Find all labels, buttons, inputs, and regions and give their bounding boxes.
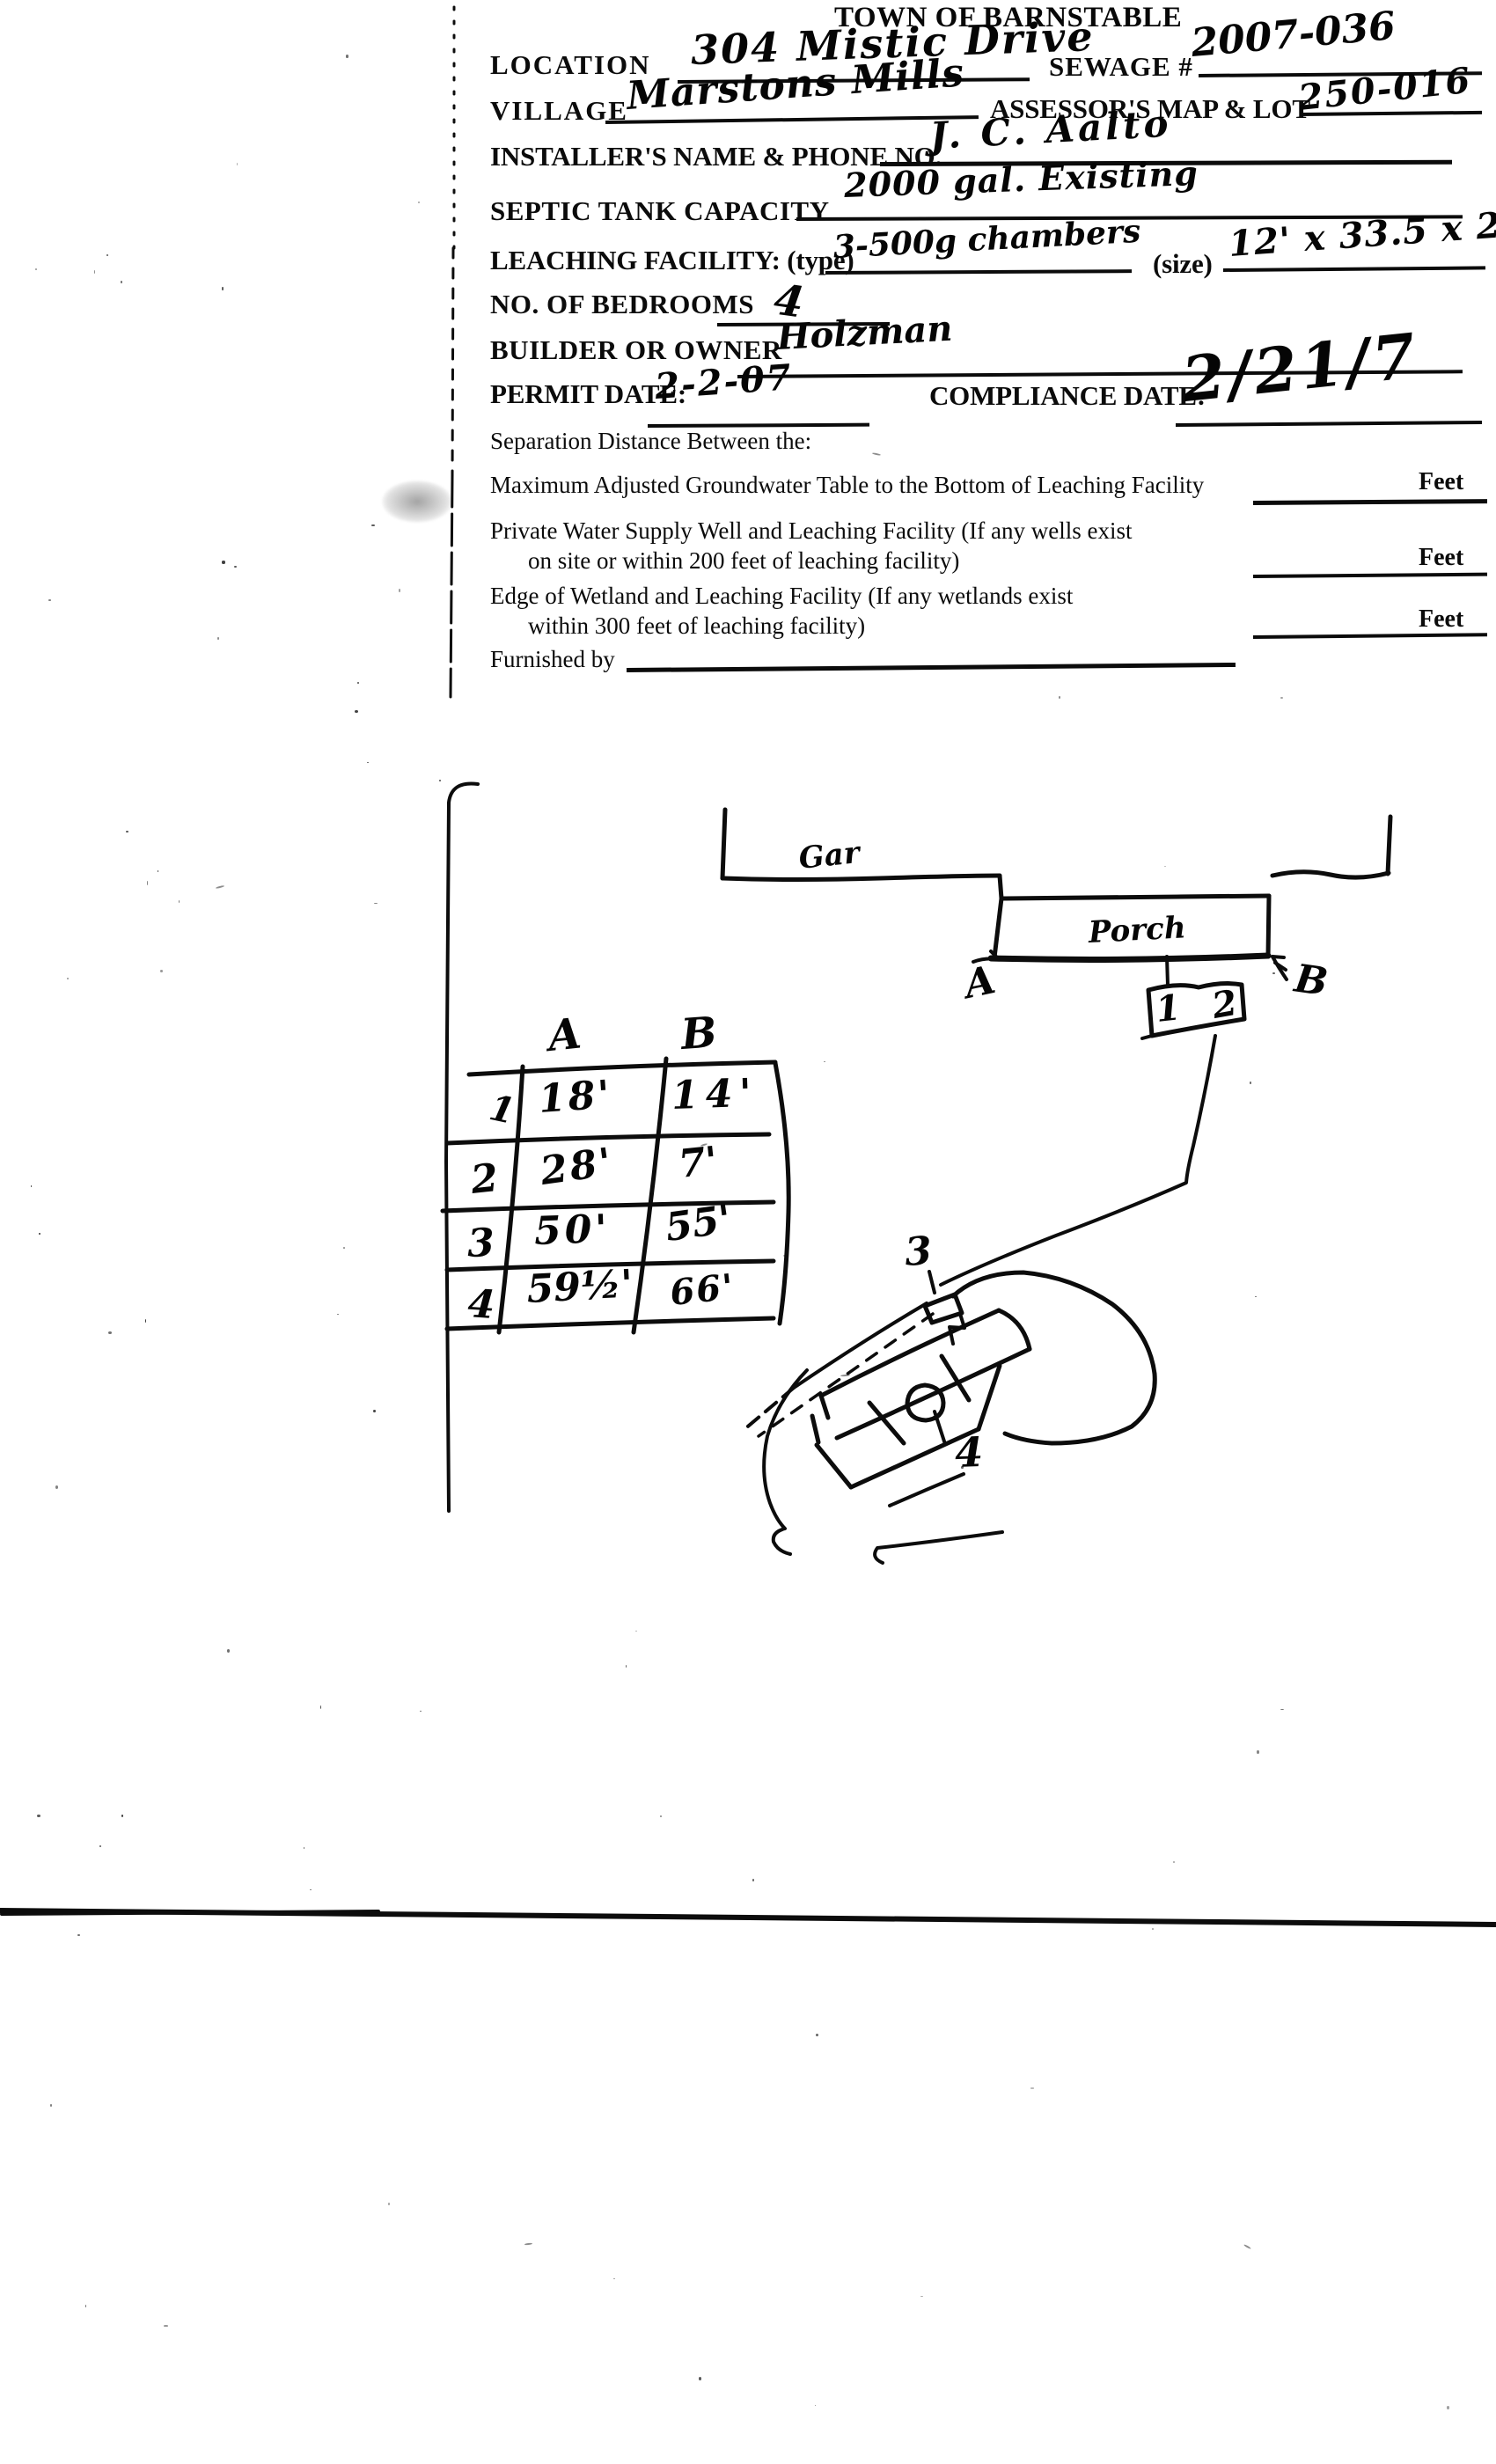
site-sketch-drawing [0,0,1496,2464]
tie-row-4-number: 4 [466,1281,496,1328]
tie-table-col-a: A [546,1008,583,1061]
tie-row-4-b: 66' [668,1266,737,1314]
tie-row-4-a: 59½' [525,1262,634,1312]
porch-label: Porch [1088,910,1187,950]
garage-label: Gar [797,835,862,876]
tie-row-1-b: 14' [671,1071,759,1118]
leach-field-label: 4 [954,1428,984,1477]
scanned-septic-permit-page: TOWN OF BARNSTABLE LOCATION 304 Mistic D… [0,0,1496,2464]
sketch-margin-line [446,783,478,1511]
tie-row-3-a: 50' [533,1206,611,1254]
tank-compartment-1-label: 1 [1154,986,1183,1030]
tie-row-3-number: 3 [466,1221,495,1266]
tie-row-3-b: 55' [663,1197,734,1250]
distribution-box-label: 3 [903,1228,933,1275]
tie-table-col-b: B [679,1008,718,1060]
house-outline [722,810,1390,959]
tie-row-1-a: 18' [537,1072,613,1122]
margin-rule [451,7,454,697]
bottom-rule [0,1910,1496,1925]
corner-b-arrow [1272,957,1287,979]
tie-row-2-b: 7' [677,1139,720,1187]
pipe-diagonals [744,1303,933,1436]
leach-field [812,1310,1030,1487]
point-b-label: B [1292,956,1331,1005]
tie-row-2-number: 2 [469,1155,501,1203]
pipe-line [941,1036,1215,1285]
